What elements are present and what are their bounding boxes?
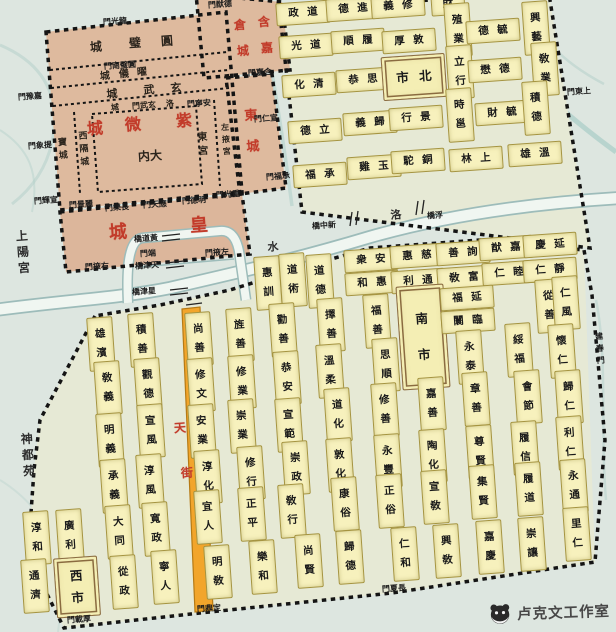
map-label: 城 [100, 72, 111, 83]
panda-logo-icon [487, 601, 514, 626]
map-label: 橋浮 [427, 211, 444, 220]
map-label: 倉 [234, 19, 247, 32]
gate-label: 門景麗 [69, 200, 93, 210]
map-label: 曜 [137, 68, 148, 79]
map-label: 城 [90, 41, 103, 54]
gate-label: 門豫嘉 [18, 92, 42, 102]
map-label: 璧 [129, 37, 142, 50]
map-label: 微 [124, 116, 141, 133]
map-label: 橋道黃 [134, 234, 158, 244]
gate-label: 門南璧圓 [104, 61, 136, 71]
map-label: 街 [181, 467, 194, 480]
gate-label: 門福承 [266, 172, 290, 182]
map-label: 城 [106, 88, 118, 100]
gate-label: 門端 [140, 249, 157, 258]
map-label: 寶城 [58, 139, 69, 162]
map-label: 東宮 [197, 133, 209, 158]
gate-label: 門掖左 [205, 248, 229, 258]
map-label: 紫 [175, 112, 192, 129]
map-label: 皇 [189, 216, 208, 235]
gate-label: 門天應 [143, 200, 167, 210]
luoyang-ward-map: 政道德進義修財光道順履厚敦殖業德毓興藝化清恭思市北立行懋德敎業德立義歸行景時邕財… [0, 0, 616, 632]
watermark-text: 卢克文工作室 [517, 599, 611, 623]
map-label: 儀 [119, 70, 130, 81]
map-label: 城 [86, 120, 103, 137]
map-label: 橋津天 [135, 261, 159, 271]
map-label: 城 [108, 223, 127, 242]
gate-label: 門載厚 [67, 615, 91, 625]
map-label: 上陽宮 [15, 230, 30, 275]
map-label: 嘉 [261, 42, 274, 55]
map-label: 洛 [390, 209, 402, 221]
map-label: 武 [143, 84, 155, 96]
gate-label: 門夏長 [382, 584, 406, 594]
gate-label: 門德明 [182, 196, 206, 206]
watermark: 卢克文工作室 [487, 598, 611, 626]
map-label: 橋津星 [132, 287, 156, 297]
map-label: 城 [111, 104, 120, 113]
gate-label: 門掖右 [85, 262, 109, 272]
gate-label: 門東上 [567, 87, 591, 97]
gate-label: 門象提 [28, 141, 52, 151]
gate-label: 門嘉含 [248, 68, 272, 78]
gate-label: 門樂長 [105, 203, 129, 213]
map-label: 圓 [161, 35, 174, 48]
map-label: 城 [237, 45, 250, 58]
map-label: 左掖宮 [221, 124, 231, 156]
gate-label: 門輝宣 [34, 196, 58, 206]
labels-layer: 紫微城皇城含倉嘉城東城天街城璧圓城儀曜城武玄城門武玄洛内大西隔城寶城東宮左掖宮上… [0, 0, 616, 632]
gate-label: 門猷德 [208, 0, 232, 10]
gate-label: 門寧安 [187, 99, 211, 109]
gate-label: 門光龍 [103, 17, 127, 27]
map-label: 玄 [170, 82, 182, 94]
map-label: 含 [258, 16, 271, 29]
gate-label: 門鼎定 [197, 604, 221, 614]
map-label: 天 [174, 422, 187, 435]
map-label: 城 [246, 140, 260, 154]
map-label: 門武玄 [132, 101, 156, 111]
gate-label: 門光重 [216, 190, 240, 200]
map-label: 内大 [138, 149, 163, 163]
map-label: 橋中新 [312, 221, 336, 231]
map-label: 神都苑 [20, 433, 35, 478]
gate-label: 建春門 [595, 333, 605, 365]
map-label: 洛 [166, 100, 175, 109]
gate-label: 門仁宣 [254, 114, 278, 124]
map-label: 水 [267, 241, 279, 253]
